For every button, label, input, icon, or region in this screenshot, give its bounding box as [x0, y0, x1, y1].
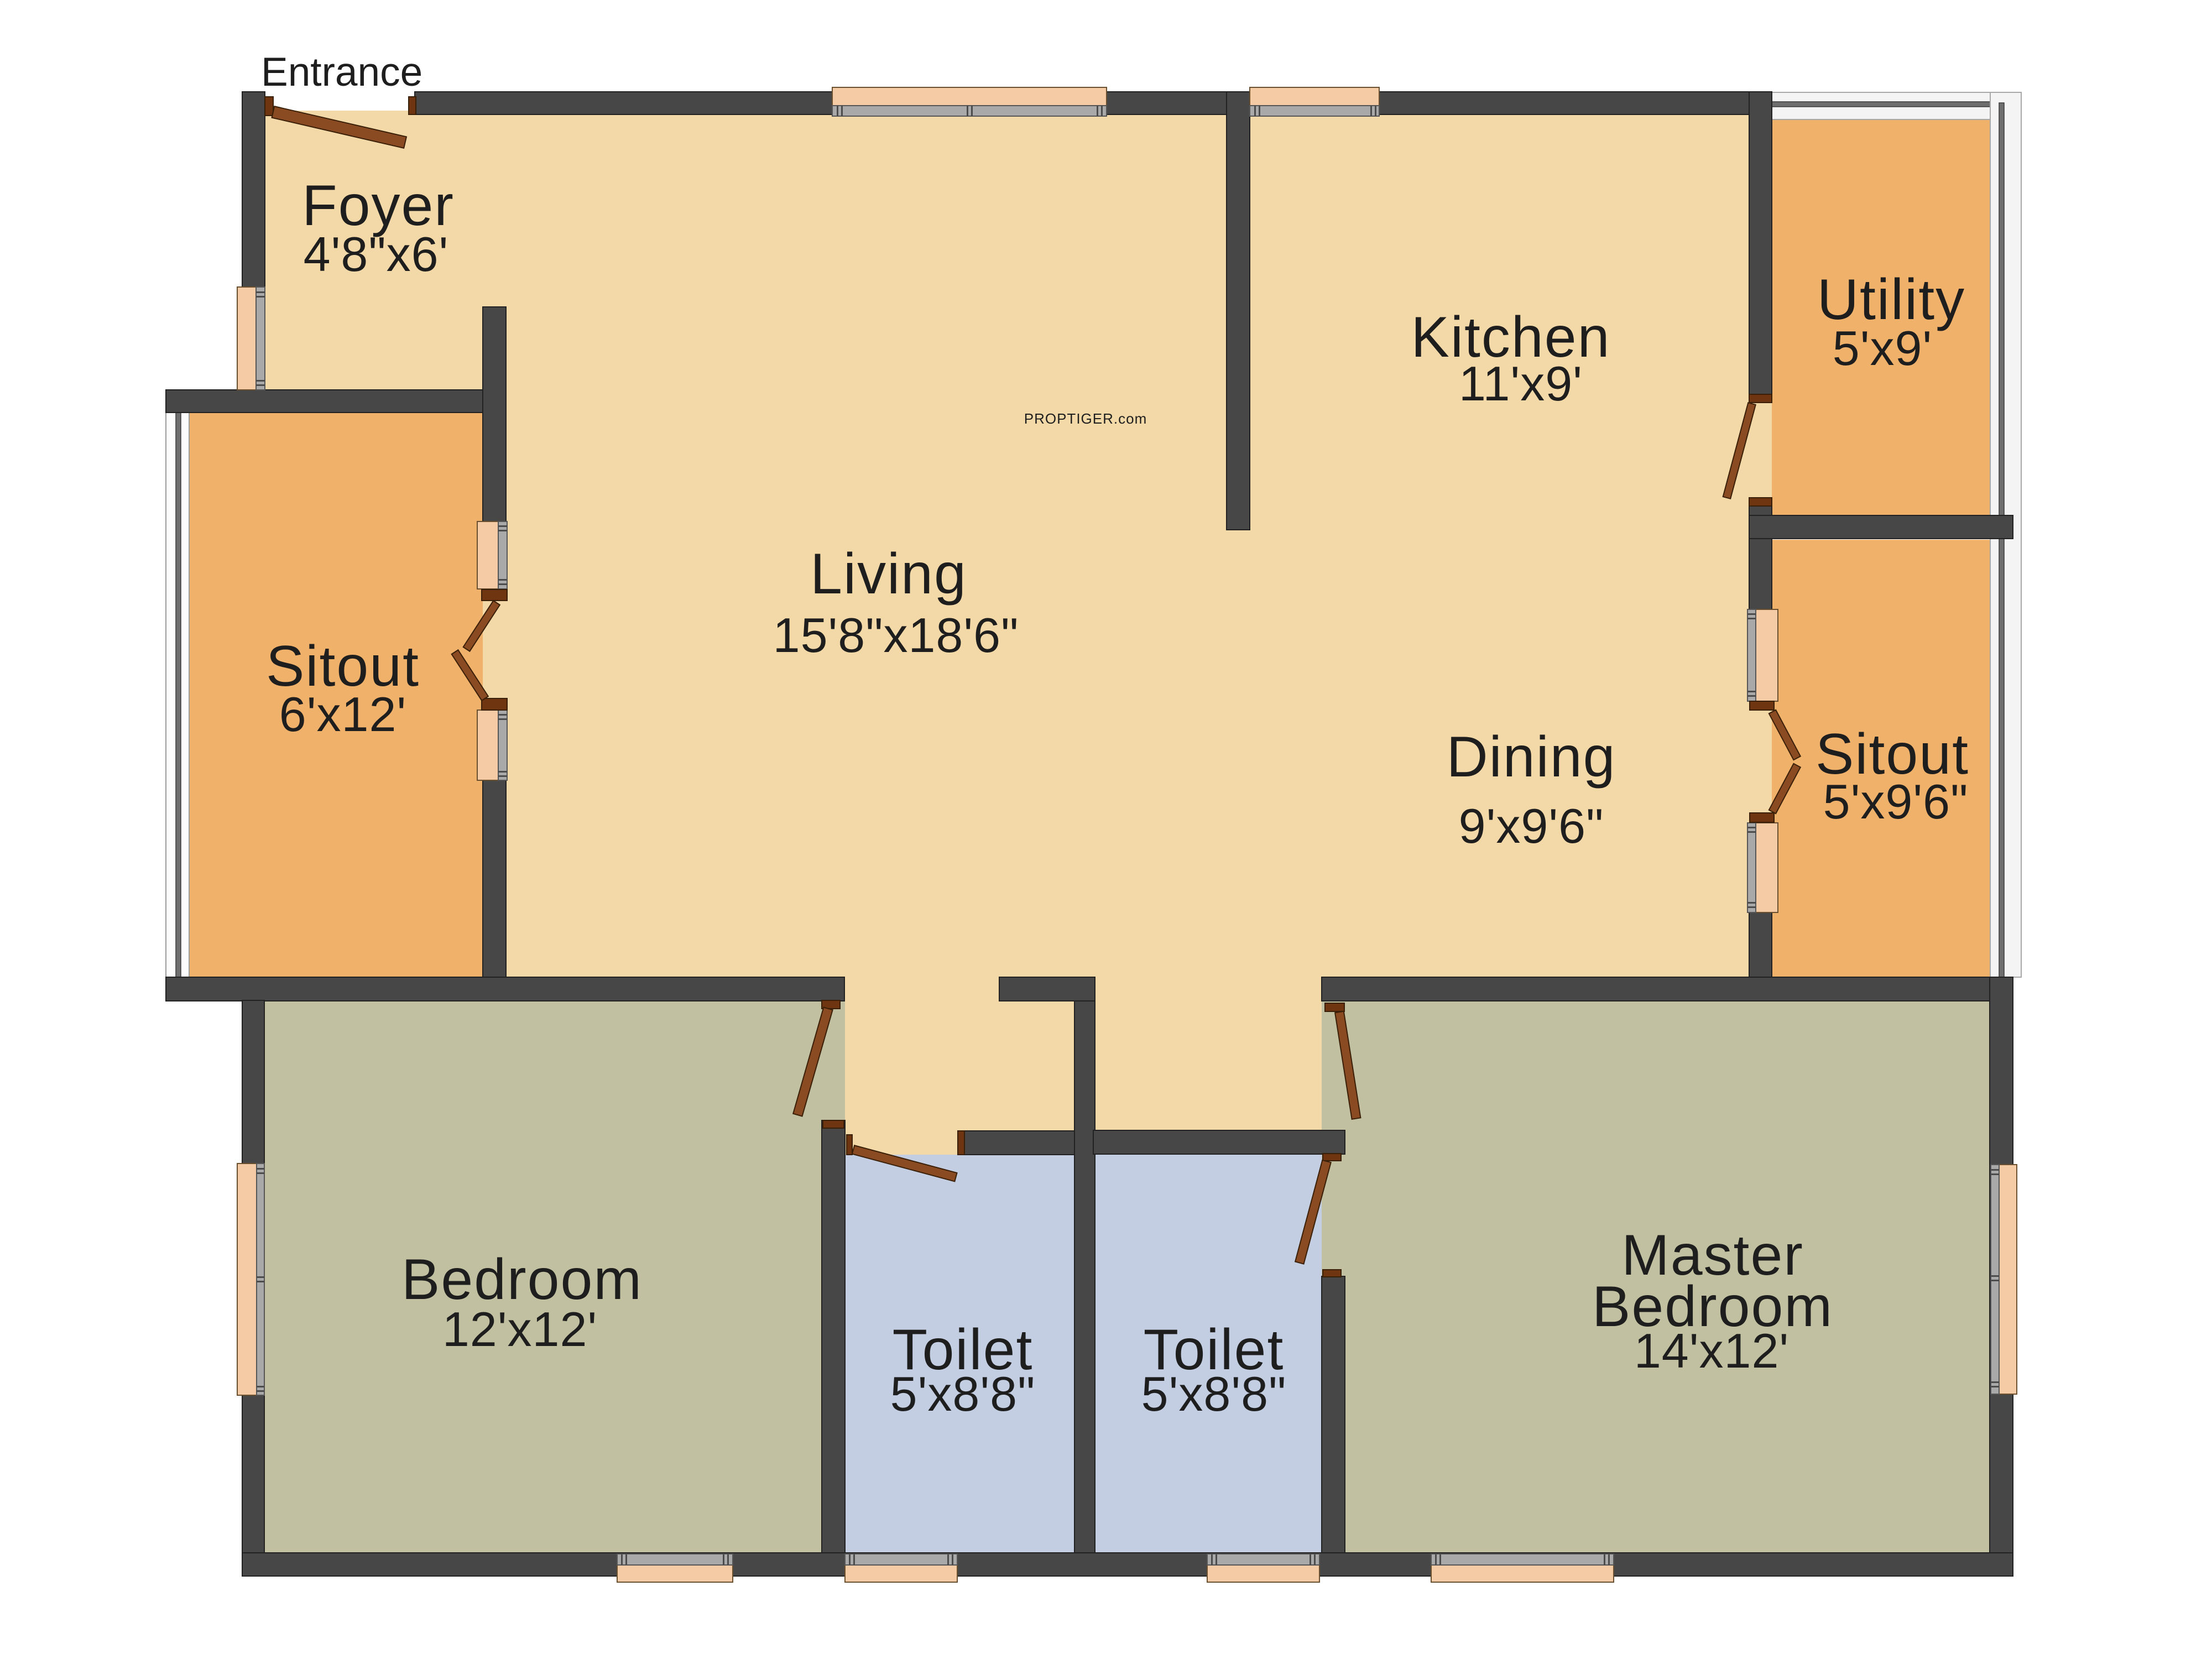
svg-text:12'x12': 12'x12' — [442, 1302, 597, 1357]
svg-text:Living: Living — [810, 542, 967, 606]
svg-text:6'x12': 6'x12' — [279, 687, 406, 742]
svg-text:5'x8'8": 5'x8'8" — [890, 1366, 1036, 1421]
svg-text:4'8"x6': 4'8"x6' — [304, 227, 449, 281]
svg-text:11'x9': 11'x9' — [1459, 356, 1583, 411]
svg-text:5'x9': 5'x9' — [1833, 321, 1932, 375]
svg-text:PROPTIGER.com: PROPTIGER.com — [1024, 410, 1147, 427]
svg-text:14'x12': 14'x12' — [1634, 1323, 1789, 1378]
svg-text:5'x9'6": 5'x9'6" — [1823, 774, 1969, 829]
svg-text:Entrance: Entrance — [261, 50, 422, 95]
svg-text:Dining: Dining — [1447, 725, 1616, 789]
svg-text:5'x8'8": 5'x8'8" — [1141, 1366, 1287, 1421]
svg-text:9'x9'6": 9'x9'6" — [1459, 799, 1604, 853]
svg-text:15'8"x18'6": 15'8"x18'6" — [773, 608, 1019, 662]
